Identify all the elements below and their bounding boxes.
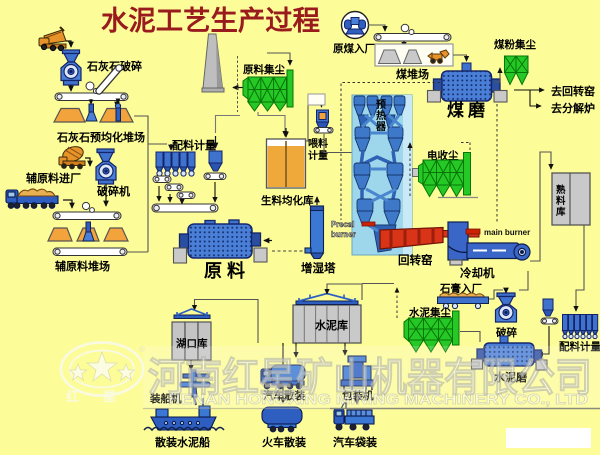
svg-text:去分解炉: 去分解炉 — [551, 101, 595, 115]
svg-text:增湿塔: 增湿塔 — [301, 261, 336, 275]
svg-text:熟: 熟 — [556, 184, 566, 196]
svg-text:散装水泥船: 散装水泥船 — [155, 435, 210, 449]
svg-text:水泥集尘: 水泥集尘 — [408, 306, 451, 319]
svg-text:回转窑: 回转窑 — [398, 253, 433, 267]
svg-text:煤堆场: 煤堆场 — [396, 67, 429, 81]
svg-text:石灰石预均化堆场: 石灰石预均化堆场 — [56, 130, 145, 144]
svg-text:预: 预 — [376, 99, 386, 111]
svg-text:器: 器 — [375, 121, 387, 133]
svg-text:喂料: 喂料 — [308, 137, 328, 150]
svg-text:料: 料 — [556, 195, 566, 207]
svg-text:burner: burner — [331, 230, 356, 239]
svg-text:HENAN HONGXING MINING MACHINER: HENAN HONGXING MINING MACHINERY CO., LTD — [168, 392, 588, 408]
svg-text:Precal: Precal — [331, 220, 354, 229]
svg-text:辅原料进厂: 辅原料进厂 — [26, 171, 81, 185]
svg-text:去回转窑: 去回转窑 — [551, 84, 595, 98]
svg-text:热: 热 — [376, 109, 386, 122]
svg-text:®: ® — [139, 345, 145, 354]
svg-text:main burner: main burner — [484, 228, 530, 237]
svg-text:生料均化库: 生料均化库 — [261, 194, 314, 207]
svg-text:煤粉集尘: 煤粉集尘 — [494, 38, 536, 51]
svg-text:配料计量: 配料计量 — [172, 138, 216, 152]
svg-text:冷却机: 冷却机 — [460, 266, 495, 280]
svg-text:计量: 计量 — [308, 149, 328, 162]
svg-text:火车散装: 火车散装 — [262, 435, 306, 449]
svg-text:水泥工艺生产过程: 水泥工艺生产过程 — [101, 6, 320, 36]
svg-text:星: 星 — [103, 389, 116, 404]
svg-text:破碎机: 破碎机 — [97, 184, 130, 198]
svg-text:原料: 原料 — [204, 260, 250, 281]
svg-text:原料集尘: 原料集尘 — [243, 63, 285, 76]
svg-text:煤磨: 煤磨 — [447, 100, 489, 120]
svg-text:库: 库 — [555, 206, 566, 218]
svg-text:辅原料堆场: 辅原料堆场 — [55, 259, 110, 273]
svg-text:原煤入厂: 原煤入厂 — [333, 42, 375, 55]
svg-text:红: 红 — [66, 389, 79, 404]
svg-text:水泥库: 水泥库 — [315, 318, 348, 332]
svg-text:汽车袋装: 汽车袋装 — [333, 435, 377, 449]
